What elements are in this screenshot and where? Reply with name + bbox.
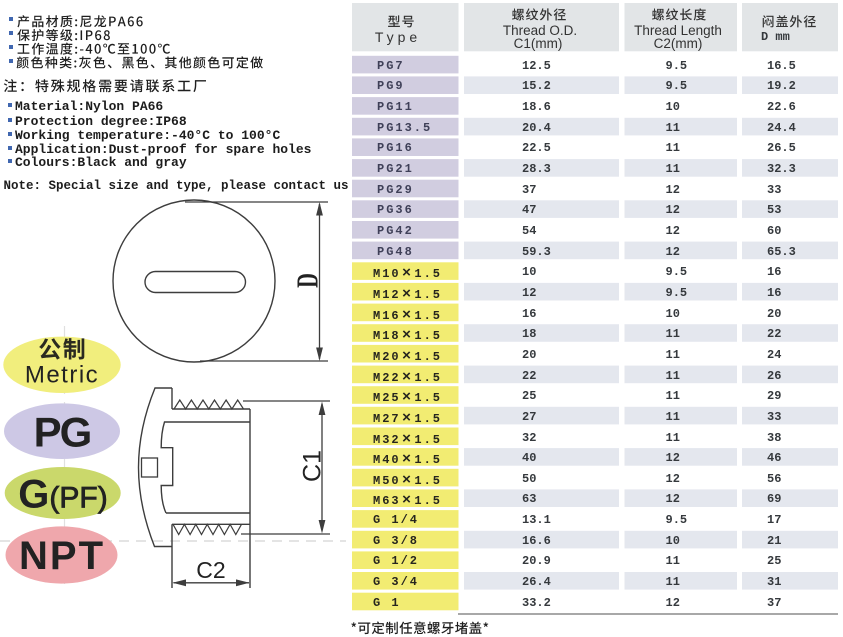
svg-text:C1: C1 xyxy=(299,450,327,482)
svg-text:Metric: Metric xyxy=(25,361,99,388)
svg-text:G(PF): G(PF) xyxy=(18,473,107,517)
svg-text:NPT: NPT xyxy=(19,534,105,578)
svg-text:PG: PG xyxy=(34,409,91,456)
svg-text:D: D xyxy=(290,273,324,288)
svg-text:C2: C2 xyxy=(196,557,225,583)
